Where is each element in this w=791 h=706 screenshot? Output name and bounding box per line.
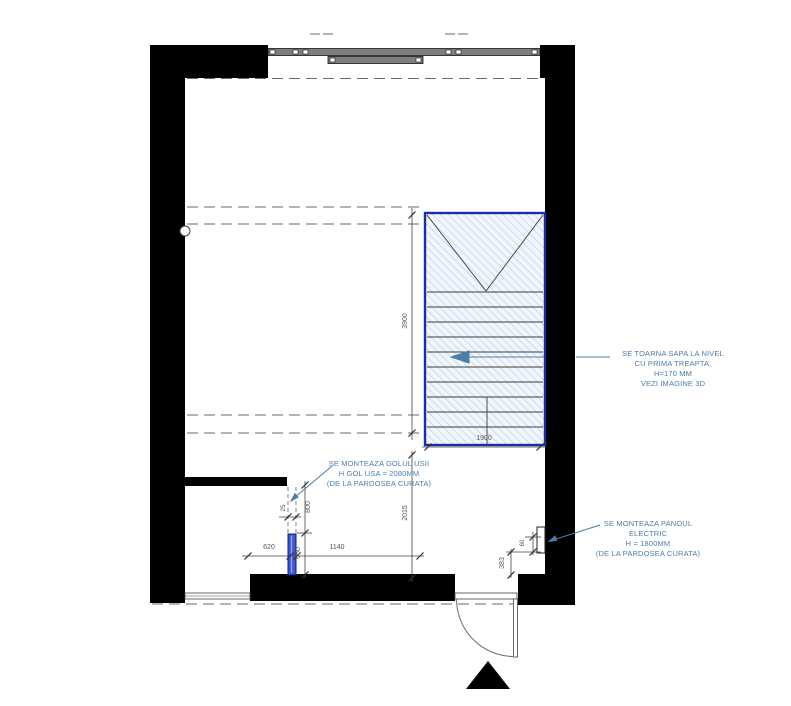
door-note-line: SE MONTEAZA GOLUL USII [326,459,432,469]
panel-note-line: H = 1800MM [588,539,708,549]
dim-jamb-gap: 25 [280,499,288,517]
door-opening-note: SE MONTEAZA GOLUL USII H GOL USA = 2080M… [326,459,432,489]
dim-lower-hall: 2015 [402,500,410,526]
wall-top-left [150,45,268,78]
door-leader-arrow-icon [291,494,298,501]
screed-note-line: VEZI IMAGINE 3D [598,379,748,389]
screed-note-line: H=170 MM [598,369,748,379]
top-window-band [268,34,540,64]
panel-note-line: ELECTRIC [588,529,708,539]
electric-panel [537,527,545,553]
dim-bottom-span: 1140 [322,544,352,552]
door-note-line: (DE LA PARDOSEA CURATA) [326,479,432,489]
electric-panel-note: SE MONTEAZA PANOUL ELECTRIC H = 1800MM (… [588,519,708,559]
stair-slab-hatch [425,213,545,445]
panel-note-line: (DE LA PARDOSEA CURATA) [588,549,708,559]
screed-note-line: CU PRIMA TREAPTA, [598,359,748,369]
floor-plan: SE TOARNA SAPA LA NIVEL CU PRIMA TREAPTA… [0,0,791,706]
wall-interior-stub [185,477,287,486]
dim-left-offset: 620 [255,544,283,552]
entrance-arrow-icon [466,661,510,689]
staircase [425,213,545,445]
entry-door-leaf [514,599,518,657]
panel-note-line: SE MONTEAZA PANOUL [588,519,708,529]
inner-window-band [328,57,423,64]
dim-door-leaf: 660 [295,541,303,565]
dim-panel-offset: 383 [499,551,507,575]
wall-left [150,45,185,603]
wall-right [545,45,575,605]
dim-stair-width: 1900 [469,435,499,443]
dim-door-opening-height: 800 [305,495,313,519]
pipe-marker [180,226,190,236]
screed-note-line: SE TOARNA SAPA LA NIVEL [598,349,748,359]
wall-bottom-right-corner [518,574,575,605]
screed-note: SE TOARNA SAPA LA NIVEL CU PRIMA TREAPTA… [598,349,748,389]
wall-bottom [250,574,455,601]
dim-stair-run: 3900 [402,308,410,334]
dim-panel-size: 60 [519,533,527,553]
door-note-line: H GOL USA = 2080MM [326,469,432,479]
